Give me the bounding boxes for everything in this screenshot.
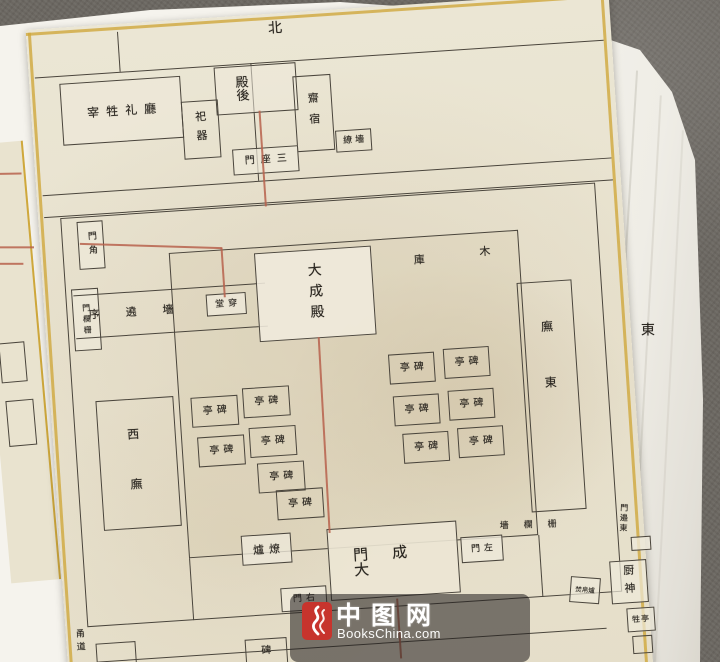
box-lodge-upper: 齋宿 xyxy=(292,74,335,152)
watermark-url-text: BooksChina.com xyxy=(337,626,441,641)
box-ritual-hall: 宰牲礼廳 xyxy=(59,76,184,146)
label-passage-hall: 堂穿 xyxy=(215,299,242,310)
stele-pavilion-label: 亭碑 xyxy=(261,435,290,447)
label-small-pavilion: 牲亭 xyxy=(632,615,650,624)
compass-east-label: 東 xyxy=(641,323,655,337)
small-empty-box xyxy=(632,635,653,654)
label-store-upper: 祀器 xyxy=(194,110,207,149)
box-triple-gate: 門座三 xyxy=(232,145,300,175)
stele-pavilion-label: 亭碑 xyxy=(454,356,483,368)
anno-wood: 木 xyxy=(479,246,491,258)
label-triple-gate: 門座三 xyxy=(245,154,294,167)
photo-canvas: 北 東 宰牲礼廳 殿後 祀器 齋宿 繚墻 門座三 xyxy=(0,0,720,662)
stele-pavilion-box: 亭碑 xyxy=(276,487,325,520)
label-kitchen: 厨神 xyxy=(622,563,635,600)
box-stele-partial: 碑 xyxy=(245,637,289,662)
box-passage-hall: 堂穿 xyxy=(206,292,247,317)
label-west-corridor: 西廡 xyxy=(126,427,145,528)
stele-pavilion-box: 亭碑 xyxy=(190,395,239,428)
box-store-upper: 祀器 xyxy=(181,99,222,159)
stele-pavilion-label: 亭碑 xyxy=(269,471,298,483)
box-small-pavilion: 牲亭 xyxy=(626,607,656,633)
stele-pavilion-box: 亭碑 xyxy=(242,385,291,418)
label-main-gate: 門成大 xyxy=(353,542,459,579)
flame-icon xyxy=(302,602,332,640)
stele-pavilion-box: 亭碑 xyxy=(197,434,246,467)
stele-pavilion-label: 亭碑 xyxy=(254,396,283,408)
red-route-line xyxy=(0,172,22,175)
label-rear-hall: 殿後 xyxy=(235,73,297,103)
label-ritual-hall: 宰牲礼廳 xyxy=(87,102,164,119)
red-route-line xyxy=(0,263,23,265)
red-route-line xyxy=(0,246,34,248)
stele-pavilion-box: 亭碑 xyxy=(443,346,491,379)
anno-store: 庫 xyxy=(413,254,425,266)
box-burner-east: 焚帛爐 xyxy=(569,576,601,604)
small-empty-box xyxy=(95,641,137,662)
watermark-banner: 中图网 BooksChina.com xyxy=(290,594,530,662)
label-burner-west: 爐燎 xyxy=(253,542,286,555)
stele-pavilion-label: 亭碑 xyxy=(203,405,232,417)
underlying-box xyxy=(5,399,37,447)
box-rear-hall: 殿後 xyxy=(214,62,299,115)
label-path-partial: 甬道 xyxy=(73,629,84,656)
stele-pavilion-box: 亭碑 xyxy=(448,388,496,421)
stele-pavilion-box: 亭碑 xyxy=(388,352,436,385)
label-wall-upper: 繚墻 xyxy=(343,135,368,146)
stele-pavilion-label: 亭碑 xyxy=(414,441,443,453)
bookschina-logo xyxy=(302,602,332,645)
stele-pavilion-box: 亭碑 xyxy=(393,393,441,426)
box-burner-west: 爐燎 xyxy=(241,533,293,566)
stele-pavilion-box: 亭碑 xyxy=(402,431,450,464)
label-east-corridor: 廡東 xyxy=(540,320,559,433)
box-main-gate: 門成大 xyxy=(326,521,460,601)
box-main-hall: 大成殿 xyxy=(254,246,377,343)
underlying-box xyxy=(0,341,28,383)
label-stele-partial: 碑 xyxy=(261,646,272,657)
label-main-hall: 大成殿 xyxy=(306,262,324,326)
box-wall-upper: 繚墻 xyxy=(335,128,372,152)
stele-pavilion-label: 亭碑 xyxy=(469,436,498,448)
east-side-gate-box xyxy=(631,536,652,551)
label-left-gate: 門左 xyxy=(471,543,498,554)
stele-pavilion-box: 亭碑 xyxy=(249,425,298,458)
stele-pavilion-label: 亭碑 xyxy=(404,404,433,416)
diagram-sheet: 北 東 宰牲礼廳 殿後 祀器 齋宿 繚墻 門座三 xyxy=(25,0,690,662)
stele-pavilion-label: 亭碑 xyxy=(288,498,317,510)
compass-north-label: 北 xyxy=(268,21,283,36)
label-lodge-upper: 齋宿 xyxy=(307,92,321,135)
label-west-side-gate: 門角 xyxy=(86,231,97,260)
box-left-gate: 門左 xyxy=(460,535,504,564)
stele-pavilion-label: 亭碑 xyxy=(459,398,488,410)
stele-pavilion-box: 亭碑 xyxy=(457,425,505,458)
label-burner-east: 焚帛爐 xyxy=(575,586,595,594)
stele-pavilion-label: 亭碑 xyxy=(400,362,429,374)
label-east-side-gate: 門邉東 xyxy=(619,503,628,533)
west-corridor: 西廡 xyxy=(95,396,181,531)
box-kitchen: 厨神 xyxy=(609,559,649,604)
stele-pavilion-label: 亭碑 xyxy=(209,445,238,457)
label-west-band: 序遶墻 xyxy=(88,302,199,320)
